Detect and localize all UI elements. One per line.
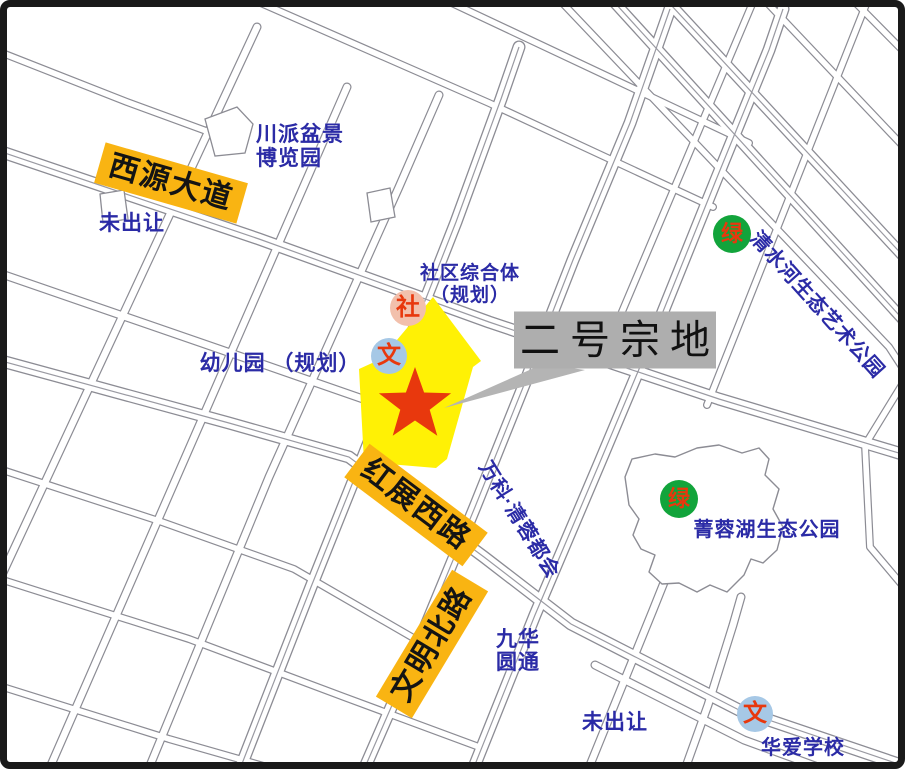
school-badge-planned: 文 [371,338,407,374]
green-space-badge-top: 绿 [713,215,751,253]
label-unsold-northwest: 未出让 [99,212,165,236]
green-space-badge-park: 绿 [660,480,698,518]
school-badge-huaai: 文 [737,696,773,732]
label-community-complex-planned: 社区综合体 （规划） [420,263,520,307]
label-huaai-school: 华爱学校 [761,736,845,760]
parcel-location-map: 西源大道 红展西路 文明北路 川派盆景 博览园 未出让 社区综合体 （规划） 幼… [0,0,905,769]
community-badge: 社 [390,290,426,326]
label-jiuhua-yuantong: 九华 圆通 [496,628,540,674]
label-bonsai-expo-park: 川派盆景 博览园 [256,123,344,171]
label-unsold-south: 未出让 [582,711,648,735]
parcel-title-callout: 二号宗地 [514,312,716,369]
label-kindergarten-planned: 幼儿园 （规划） [200,352,361,376]
street-network-canvas [7,7,905,769]
label-jingrong-lake-eco-park: 菁蓉湖生态公园 [694,518,841,542]
